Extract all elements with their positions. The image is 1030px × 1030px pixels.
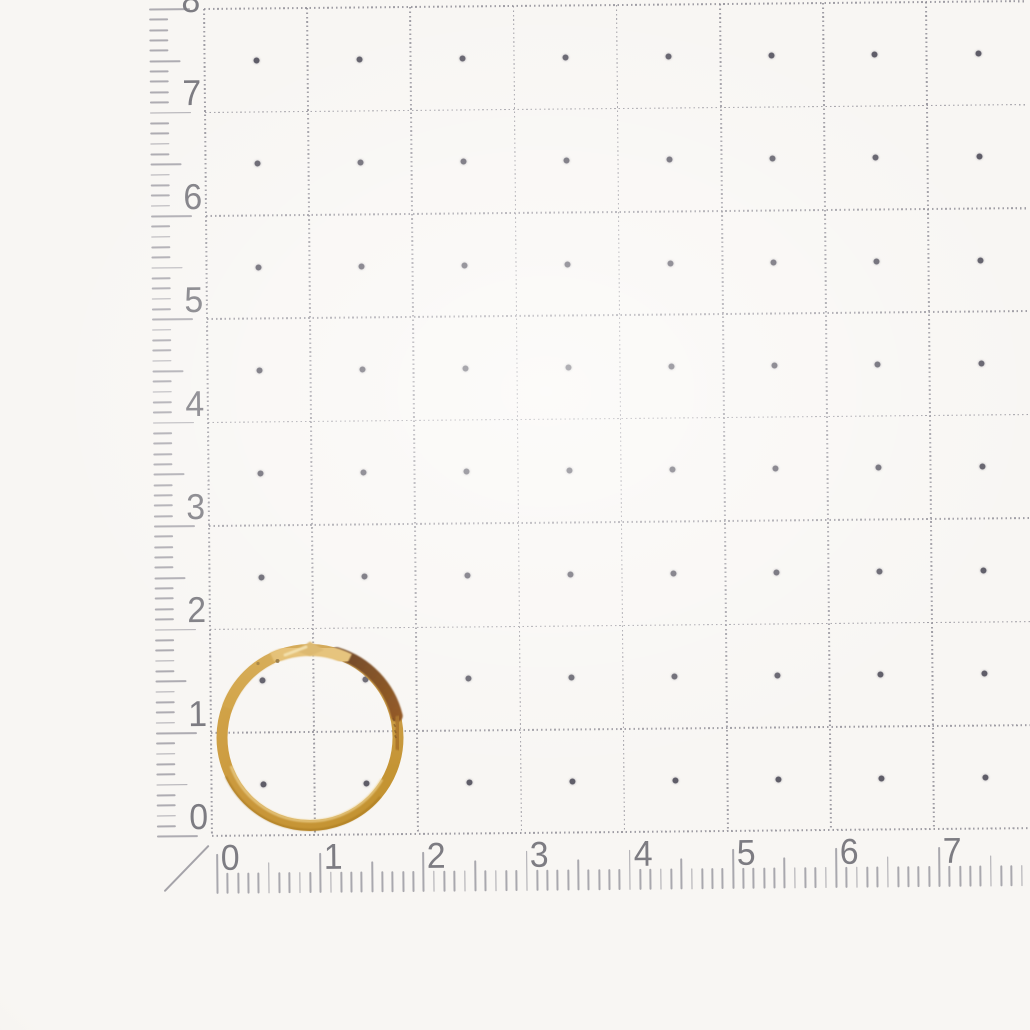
ring-upper-left-light bbox=[227, 658, 272, 707]
ring-hinge-dot bbox=[276, 659, 280, 663]
photo-ring-on-grid-paper: 87654321001234567 bbox=[0, 0, 1030, 1030]
ring-mid-reflection bbox=[396, 716, 398, 750]
gold-ring bbox=[0, 0, 1030, 1030]
ring-hinge-dot bbox=[256, 662, 259, 665]
